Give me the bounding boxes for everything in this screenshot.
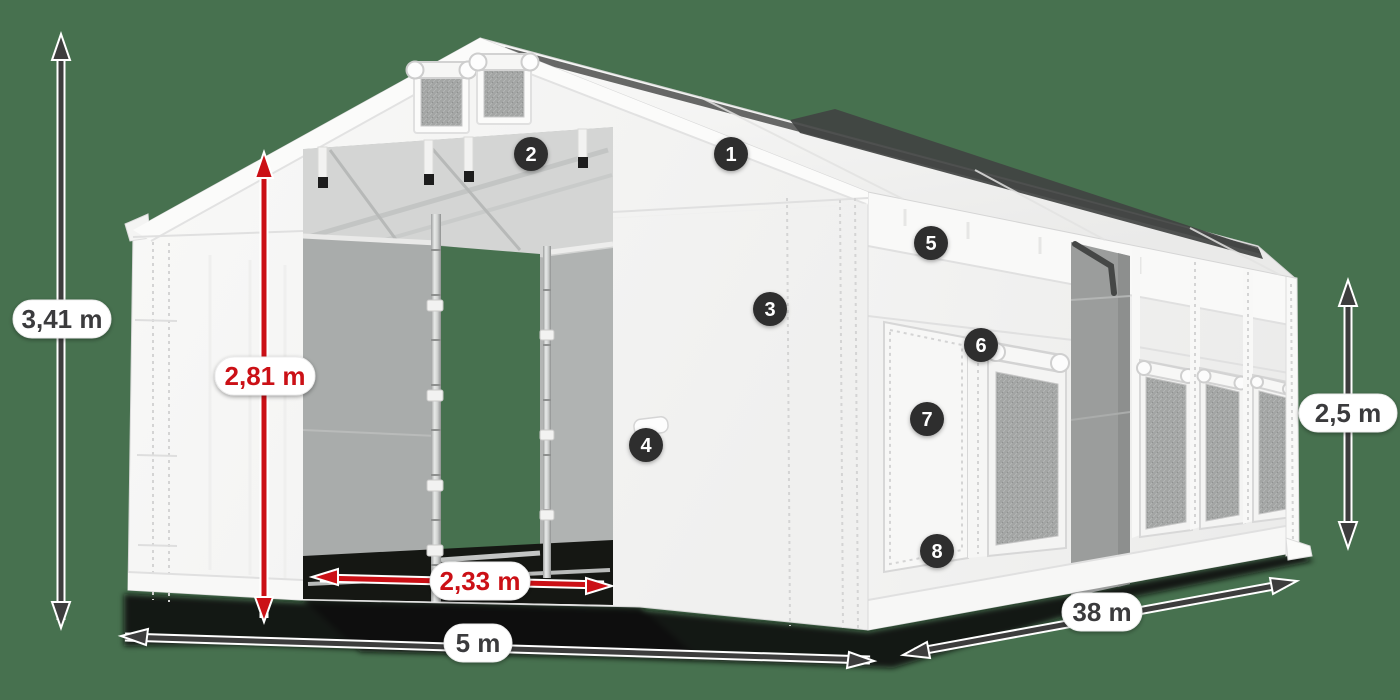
length-label: 38 m [1072,597,1131,627]
callout-1: 1 [714,137,748,171]
side-window-3 [1198,368,1248,529]
callout-5: 5 [914,226,948,260]
window-mesh [996,372,1058,545]
callout-6-number: 6 [975,335,986,357]
module-gap [1071,242,1130,597]
callout-8-number: 8 [931,541,942,563]
callout-4: 4 [629,428,663,462]
window-roll [407,62,477,79]
gable-window-2 [470,54,539,125]
window-roll [470,54,539,71]
side-window-2 [1137,360,1195,537]
tent-diagram-canvas: 1 2 3 4 5 6 7 8 [0,0,1400,700]
strap [578,129,588,168]
door-width-label: 2,33 m [440,566,521,596]
window-mesh [1146,377,1186,529]
module-divider-3 [1243,268,1253,524]
interior-view [303,127,613,605]
interior-left-wall [303,238,437,603]
strap-clip [464,171,474,182]
inner-height-label: 2,81 m [225,361,306,391]
callout-6: 6 [964,328,998,362]
window-mesh [484,70,524,117]
module-divider-1 [1132,246,1140,538]
interior-right-door [551,248,613,582]
callout-3: 3 [753,292,787,326]
window-mesh [1206,384,1239,521]
strap-clip [318,177,328,188]
strap [464,137,474,182]
side-door-panel [884,322,968,572]
window-mesh [1259,391,1287,514]
window-mesh [421,78,462,126]
callout-5-number: 5 [925,233,936,255]
callout-7: 7 [910,402,944,436]
callout-2: 2 [514,137,548,171]
strap [318,147,328,188]
tent-dimensions-illustration: 1 2 3 4 5 6 7 8 [0,0,1400,700]
callout-7-number: 7 [921,409,932,431]
callout-4-number: 4 [640,435,652,457]
strap-clip [424,174,434,185]
side-height-label: 2,5 m [1315,398,1382,428]
gable-window-1 [407,62,477,134]
callout-3-number: 3 [764,299,775,321]
total-height-label: 3,41 m [22,304,103,334]
callout-1-number: 1 [725,144,736,166]
callout-2-number: 2 [525,144,536,166]
side-window-1 [987,343,1069,556]
callout-8: 8 [920,534,954,568]
width-label: 5 m [456,628,501,658]
strap [424,140,434,185]
strap-clip [578,157,588,168]
